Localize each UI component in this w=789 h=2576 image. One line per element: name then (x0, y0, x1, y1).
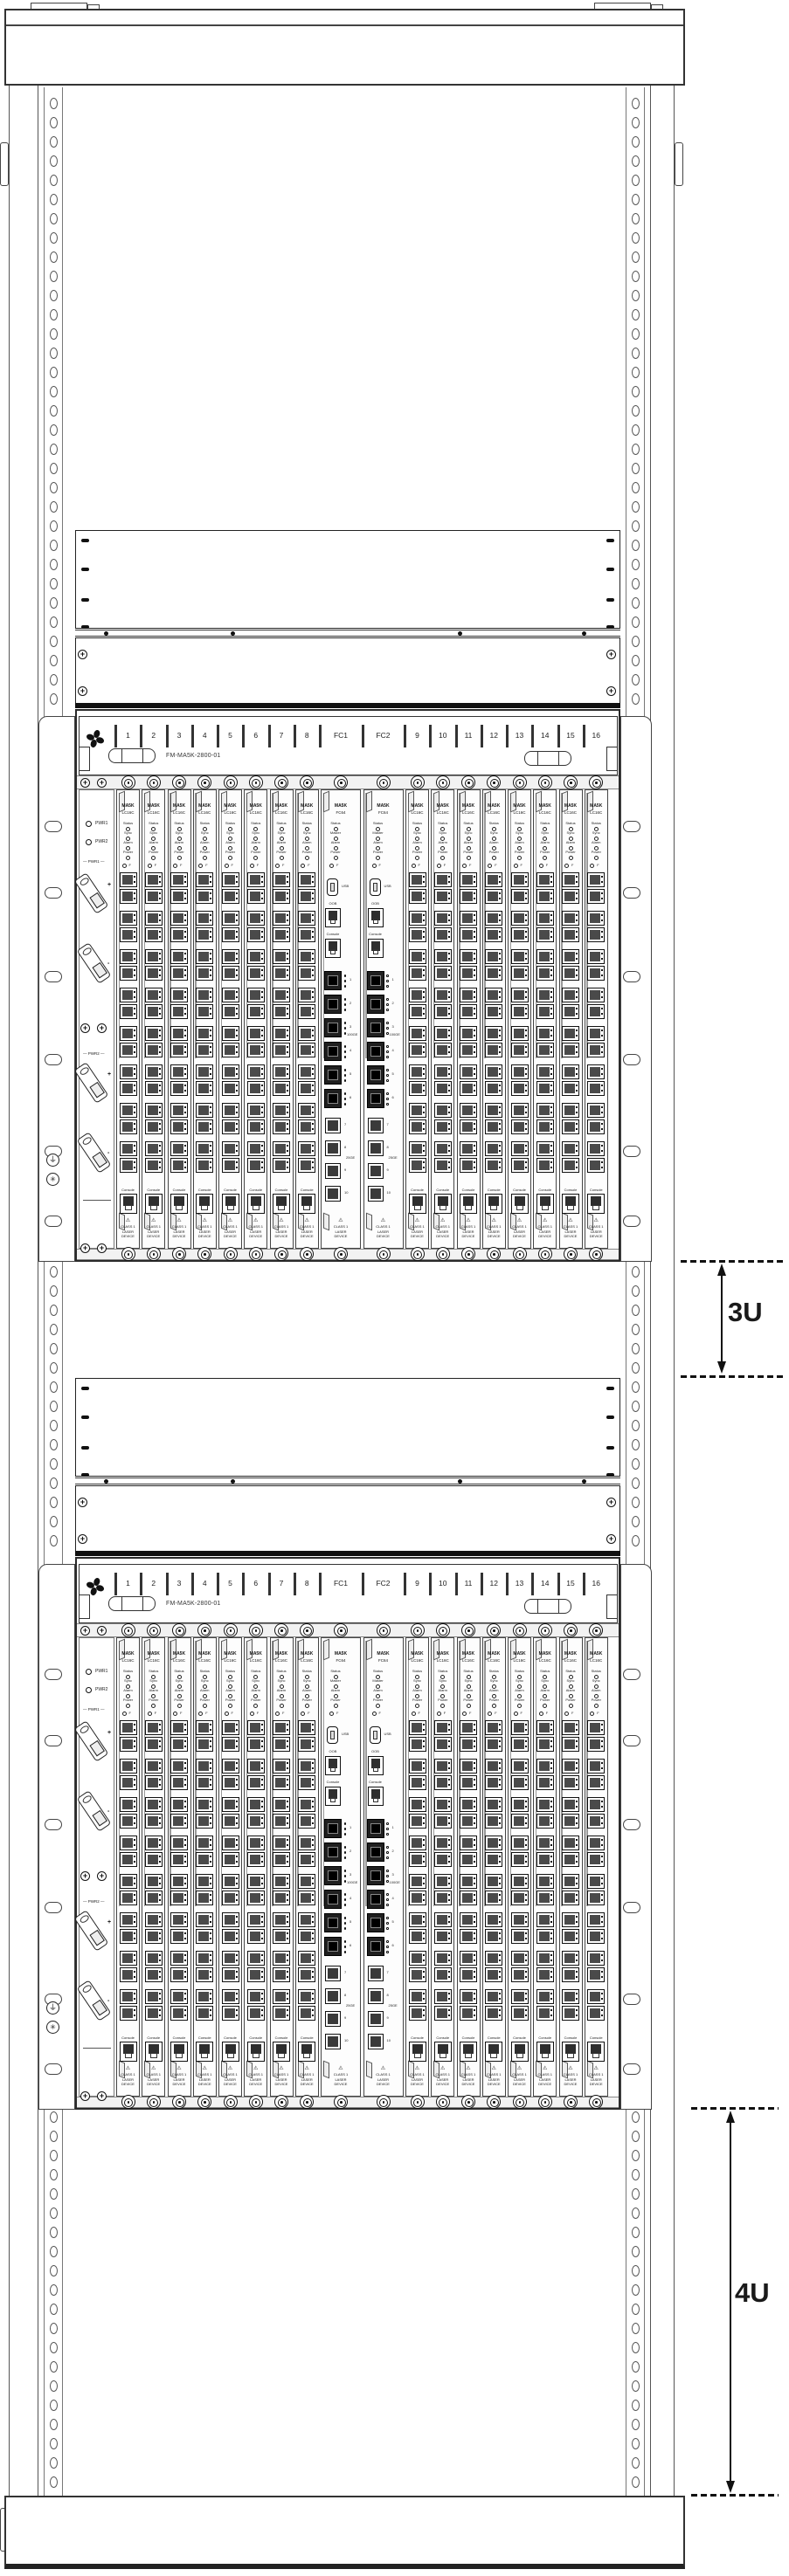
card-captive-screw-top (377, 775, 391, 789)
sfp-port (120, 911, 137, 926)
card-type-label: LC16C (168, 810, 191, 815)
polarity-minus: - (107, 961, 109, 967)
sfp-port (145, 1891, 163, 1905)
sfp-port (222, 1874, 239, 1889)
dim-4u-arrowhead-down (726, 2481, 735, 2493)
rail-hole-right (632, 520, 640, 532)
port-led (386, 1893, 389, 1896)
sfp-port (434, 1836, 452, 1850)
led-label-power: Power (296, 851, 318, 854)
led-label-power: Power (458, 851, 480, 854)
sfp-port (298, 1967, 315, 1982)
sfp-port (145, 1989, 163, 2004)
sfp-port (145, 1004, 163, 1019)
card-captive-screw-top (538, 1623, 552, 1637)
port-led (386, 1946, 389, 1948)
rail-hole-left (50, 1362, 58, 1374)
sfp-port (587, 1814, 605, 1829)
sfp-port (409, 911, 426, 926)
power-led-label: PWR2 (95, 1687, 107, 1692)
sfp-port (460, 1797, 477, 1812)
chassis-model-label: FM-MA5K-2800-01 (166, 1601, 221, 1607)
sfp-port (587, 872, 605, 887)
sfp-port (434, 889, 452, 904)
rail-hole-right (632, 328, 640, 340)
led-label-alarm: Alarm (219, 841, 241, 844)
card-captive-screw-top (147, 775, 161, 789)
card-ejector-lever-top (298, 1639, 304, 1661)
card-ejector-lever-top (221, 1639, 227, 1661)
qsfp-port (367, 1065, 384, 1085)
sfp-port (511, 1737, 529, 1752)
ear-slot-hole (45, 1216, 62, 1227)
sfp-speed-label: 25GE (389, 1156, 398, 1160)
rail-hole-left (50, 2438, 58, 2449)
laser-warning-text: CLASS 1 (508, 2073, 531, 2077)
panel-screw-dash (606, 598, 614, 602)
card-type-label: LC16C (585, 810, 608, 815)
sfp-uplink-port (325, 1988, 341, 2004)
rail-hole-left (50, 1439, 58, 1450)
sfp-port (247, 1951, 265, 1966)
sfp-port (298, 911, 315, 926)
oob-label: OOB (368, 1750, 384, 1753)
laser-warning-text: DEVICE (142, 1235, 165, 1239)
sfp-port (536, 1119, 554, 1134)
port-led (386, 1003, 389, 1006)
slot-label-7: 7 (270, 731, 294, 740)
sfp-port (485, 1775, 502, 1790)
led-label-power: Power (322, 1698, 350, 1702)
console-label: Console (142, 1188, 165, 1192)
laser-warning-text: CLASS 1 (457, 1225, 481, 1229)
sfp-port (511, 1989, 529, 2004)
sfp-port (298, 1004, 315, 1019)
sfp-port (409, 1043, 426, 1057)
sfp-port (298, 1989, 315, 2004)
sfp-port (485, 927, 502, 942)
led-label-sync: Sync (169, 1679, 190, 1683)
sfp-port (222, 949, 239, 964)
f-button-label: F (336, 1712, 338, 1715)
power-led (543, 856, 547, 860)
led-label-alarm: Alarm (142, 841, 164, 844)
sfp-port (273, 1103, 290, 1118)
qsfp-port-number: 4 (350, 1049, 351, 1052)
qsfp-port-number: 2 (350, 1002, 351, 1005)
rail-hole-right (632, 309, 640, 320)
card-model-label: MA5K (533, 1652, 557, 1657)
sfp-port (170, 966, 188, 981)
sfp-port (536, 872, 554, 887)
sfp-port (587, 1081, 605, 1096)
led-label-alarm: Alarm (585, 841, 607, 844)
rail-hole-left (50, 1497, 58, 1508)
led-label-alarm: Alarm (432, 1689, 453, 1692)
power-led (203, 856, 207, 860)
card-captive-screw-top (121, 775, 135, 789)
sfp-port (409, 1026, 426, 1041)
sfp-port (587, 1158, 605, 1173)
card-ejector-lever-top (246, 1639, 253, 1661)
sfp-port (247, 1103, 265, 1118)
rail-hole-left (50, 117, 58, 128)
console-label: Console (457, 2036, 481, 2040)
sfp-port (145, 911, 163, 926)
port-led (386, 1045, 389, 1048)
sfp-port (120, 1951, 137, 1966)
power-led (492, 1704, 496, 1708)
power-led (415, 856, 419, 860)
panel-screw-dash (81, 625, 89, 629)
rail-hole-left (50, 2380, 58, 2392)
sfp-port (434, 1141, 452, 1156)
rail-hole-left (50, 424, 58, 436)
console-label: Console (218, 2036, 242, 2040)
sfp-port (536, 1891, 554, 1905)
led-label-status: Status (560, 822, 582, 825)
sfp-port (460, 1912, 477, 1927)
rail-hole-right (632, 2361, 640, 2373)
laser-warning-text: CLASS 1 (295, 2073, 319, 2077)
ear-slot-hole (45, 971, 62, 982)
polarity-minus: - (107, 1150, 109, 1156)
sfp-port (460, 1158, 477, 1173)
oob-port (368, 908, 384, 927)
led-label-power: Power (219, 851, 241, 854)
f-button-led (148, 864, 152, 868)
led-label-status: Status (585, 1670, 607, 1673)
power-led (280, 1704, 284, 1708)
sfp-port (485, 872, 502, 887)
sfp-port (298, 889, 315, 904)
laser-warning-text: DEVICE (457, 2083, 481, 2087)
f-button-led (250, 864, 254, 868)
rail-hole-left (50, 674, 58, 685)
qsfp-port (324, 1018, 342, 1037)
card-type-label: LC16C (559, 1658, 583, 1663)
power-led (334, 856, 338, 860)
sfp-port (460, 1103, 477, 1118)
port-led (386, 1009, 389, 1011)
sfp-port (120, 872, 137, 887)
rail-hole-right (632, 1401, 640, 1412)
console-label: Console (244, 1188, 267, 1192)
panel-screw-dash (81, 1387, 89, 1390)
rail-hole-left (50, 501, 58, 513)
f-button-label: F (205, 1712, 207, 1715)
sfp-port (222, 1081, 239, 1096)
card-captive-screw-top (461, 775, 475, 789)
led-label-sync: Sync (194, 1679, 216, 1683)
mounting-bar-rivet (458, 631, 462, 636)
laser-warning-text: CLASS 1 (457, 2073, 481, 2077)
rail-hole-right (632, 98, 640, 109)
f-button-led (564, 1712, 569, 1716)
polarity-plus: + (107, 1071, 111, 1078)
sfp-port (434, 1967, 452, 1982)
sfp-port (273, 1759, 290, 1774)
sfp-port (434, 1720, 452, 1735)
sfp-port (222, 1852, 239, 1867)
sfp-port (460, 872, 477, 887)
qsfp-port-number: 2 (392, 1849, 394, 1853)
port-led (386, 1922, 389, 1925)
sfp-port (460, 1775, 477, 1790)
laser-warning-text: DEVICE (116, 1235, 140, 1239)
sfp-port (409, 1989, 426, 2004)
led-label-status: Status (245, 822, 266, 825)
power-panel (79, 789, 114, 1249)
sfp-port (196, 889, 213, 904)
console-label: Console (193, 2036, 217, 2040)
laser-warning-text: DEVICE (482, 1235, 506, 1239)
sfp-port-number: 7 (387, 1971, 389, 1974)
led-label-status: Status (483, 822, 505, 825)
sfp-port (298, 1026, 315, 1041)
card-model-label: MA5K (295, 804, 319, 809)
card-ejector-lever-top (144, 1639, 150, 1661)
card-captive-screw-bottom (274, 1247, 288, 1261)
sfp-port (409, 889, 426, 904)
rail-hole-right (632, 2380, 640, 2392)
port-led (386, 1856, 389, 1859)
sfp-port (247, 2006, 265, 2021)
sfp-port (536, 988, 554, 1002)
sfp-port (434, 2006, 452, 2021)
card-type-label: LC16C (295, 810, 319, 815)
laser-warning-text: CLASS 1 (142, 2073, 165, 2077)
card-captive-screw-bottom (377, 2095, 391, 2109)
sfp-port (196, 949, 213, 964)
sfp-port (247, 1064, 265, 1079)
port-led (386, 1069, 389, 1071)
panel-screw-dash (81, 1415, 89, 1419)
led-label-power: Power (117, 1698, 139, 1702)
slot-label-11: 11 (457, 1579, 481, 1588)
console-label: Console (585, 2036, 608, 2040)
led-label-alarm: Alarm (560, 1689, 582, 1692)
rail-hole-right (632, 559, 640, 570)
laser-warning-icon: ⚠ (218, 2066, 242, 2071)
laser-warning-icon: ⚠ (270, 2066, 294, 2071)
console-label: Console (193, 1188, 217, 1192)
port-led (386, 1870, 389, 1872)
laser-warning-icon: ⚠ (193, 2066, 217, 2071)
sfp-port (562, 1026, 579, 1041)
port-led (386, 1927, 389, 1930)
card-model-label: MA5K (244, 804, 267, 809)
sfp-port (460, 927, 477, 942)
sfp-port (145, 2006, 163, 2021)
card-model-label: MA5K (116, 804, 140, 809)
led-label-power: Power (271, 851, 293, 854)
led-label-alarm: Alarm (219, 1689, 241, 1692)
sfp-port (247, 1797, 265, 1812)
sfp-port (485, 1951, 502, 1966)
led-label-sync: Sync (534, 831, 556, 835)
led-label-sync: Sync (560, 831, 582, 835)
sfp-port (247, 1912, 265, 1927)
f-button-label: F (469, 864, 471, 867)
sfp-port (273, 1912, 290, 1927)
sfp-port (247, 911, 265, 926)
panel-screw-dash (606, 1446, 614, 1450)
led-label-status: Status (364, 1670, 392, 1673)
sfp-port (562, 1064, 579, 1079)
laser-warning-text: DEVICE (244, 1235, 267, 1239)
sfp-port (298, 872, 315, 887)
console-port (587, 2042, 605, 2062)
chassis-ear-right (620, 1564, 652, 2110)
sfp-port (120, 1929, 137, 1944)
rail-hole-left (50, 1535, 58, 1546)
led-label-power: Power (194, 1698, 216, 1702)
sfp-port (170, 872, 188, 887)
laser-warning-text: DEVICE (218, 1235, 242, 1239)
card-model-label: MA5K (482, 804, 506, 809)
sfp-uplink-port (368, 2011, 384, 2027)
f-button-label: F (205, 864, 207, 867)
led-label-status: Status (560, 1670, 582, 1673)
sfp-port (511, 966, 529, 981)
led-label-alarm: Alarm (364, 841, 392, 844)
sfp-port (409, 1119, 426, 1134)
laser-warning-text: DEVICE (508, 2083, 531, 2087)
port-led (386, 1833, 389, 1836)
led-label-sync: Sync (534, 1679, 556, 1683)
console-label: Console (295, 2036, 319, 2040)
slot-label-2: 2 (142, 1579, 165, 1588)
sfp-port (587, 1043, 605, 1057)
led-label-sync: Sync (432, 1679, 453, 1683)
laser-warning-text: CLASS 1 (482, 2073, 506, 2077)
card-type-label: LC16C (142, 810, 165, 815)
sfp-port (170, 1874, 188, 1889)
mounting-bar-rivet (104, 1479, 108, 1484)
port-led (344, 1098, 347, 1100)
sfp-port-number: 10 (344, 2039, 348, 2042)
led-label-status: Status (509, 822, 530, 825)
power-led (177, 856, 182, 860)
led-label-alarm: Alarm (169, 1689, 190, 1692)
rack-side-latch-top-left (0, 142, 9, 186)
sfp-port (120, 1064, 137, 1079)
rail-hole-left (50, 463, 58, 474)
rail-hole-left (50, 1343, 58, 1354)
led-label-alarm: Alarm (406, 1689, 428, 1692)
f-button-led (412, 1712, 416, 1716)
led-label-sync: Sync (483, 831, 505, 835)
card-type-label: LC16C (295, 1658, 319, 1663)
laser-warning-text: DEVICE (244, 2083, 267, 2087)
console-port (222, 2042, 239, 2062)
card-model-label: MA5K (295, 1652, 319, 1657)
sfp-port (562, 1951, 579, 1966)
f-button-led (412, 864, 416, 868)
slot-label-3: 3 (168, 1579, 191, 1588)
led-label-power: Power (142, 1698, 164, 1702)
card-model-label: MA5K (431, 1652, 454, 1657)
card-ejector-lever-top (460, 791, 466, 813)
mounting-bar-rivet (582, 631, 586, 636)
sfp-port (247, 1775, 265, 1790)
sfp-port (485, 1026, 502, 1041)
sfp-port (460, 1026, 477, 1041)
sfp-port (170, 1759, 188, 1774)
card-model-label: MA5K (270, 1652, 294, 1657)
console-port (170, 1194, 188, 1214)
led-label-power: Power (534, 851, 556, 854)
rail-hole-left (50, 194, 58, 205)
sfp-port (562, 1912, 579, 1927)
sfp-port-number: 9 (344, 1168, 346, 1172)
rail-hole-right (632, 1439, 640, 1450)
laser-warning-text: CLASS 1 (482, 1225, 506, 1229)
card-ejector-lever-top (144, 791, 150, 813)
sfp-port (120, 889, 137, 904)
qsfp-port (367, 1018, 384, 1037)
card-captive-screw-bottom (334, 1247, 348, 1261)
slot-label-1: 1 (116, 1579, 140, 1588)
rail-hole-right (632, 2169, 640, 2180)
laser-warning-text: CLASS 1 (405, 1225, 429, 1229)
sfp-port (273, 1797, 290, 1812)
laser-warning-text: DEVICE (405, 1235, 429, 1239)
card-model-label: MA5K (218, 804, 242, 809)
f-button-label: F (521, 864, 523, 867)
card-ejector-lever-top (587, 791, 593, 813)
power-led (415, 1704, 419, 1708)
console-port (409, 2042, 426, 2062)
sfp-port (222, 1929, 239, 1944)
power-led (492, 856, 496, 860)
ear-slot-hole (45, 1902, 62, 1913)
f-button-led (462, 864, 467, 868)
rail-hole-left (50, 520, 58, 532)
port-led (344, 1833, 347, 1836)
sfp-port (434, 949, 452, 964)
sfp-port (145, 1874, 163, 1889)
ear-slot-hole (45, 1054, 62, 1065)
sfp-port (587, 1797, 605, 1812)
sfp-port (434, 988, 452, 1002)
port-led (386, 1822, 389, 1825)
sfp-uplink-port (325, 1163, 341, 1179)
card-ejector-lever-top (119, 791, 125, 813)
qsfp-port-number: 6 (350, 1096, 351, 1099)
qsfp-port-number: 3 (350, 1025, 351, 1029)
qsfp-port-number: 1 (350, 1826, 351, 1829)
rail-hole-right (632, 2227, 640, 2238)
sfp-port (145, 1158, 163, 1173)
sfp-port (120, 1720, 137, 1735)
sfp-port (409, 949, 426, 964)
card-captive-screw-bottom (461, 2095, 475, 2109)
sfp-port (145, 872, 163, 887)
slot-label-4: 4 (193, 731, 217, 740)
card-captive-screw-top (564, 775, 578, 789)
sfp-port (170, 1141, 188, 1156)
rail-hole-left (50, 2227, 58, 2238)
laser-warning-icon: ⚠ (142, 2066, 165, 2071)
led-label-status: Status (509, 1670, 530, 1673)
sfp-port (196, 966, 213, 981)
console-port (196, 2042, 213, 2062)
rail-hole-left (50, 98, 58, 109)
laser-warning-icon: ⚠ (482, 1218, 506, 1223)
laser-warning-text: DEVICE (295, 1235, 319, 1239)
